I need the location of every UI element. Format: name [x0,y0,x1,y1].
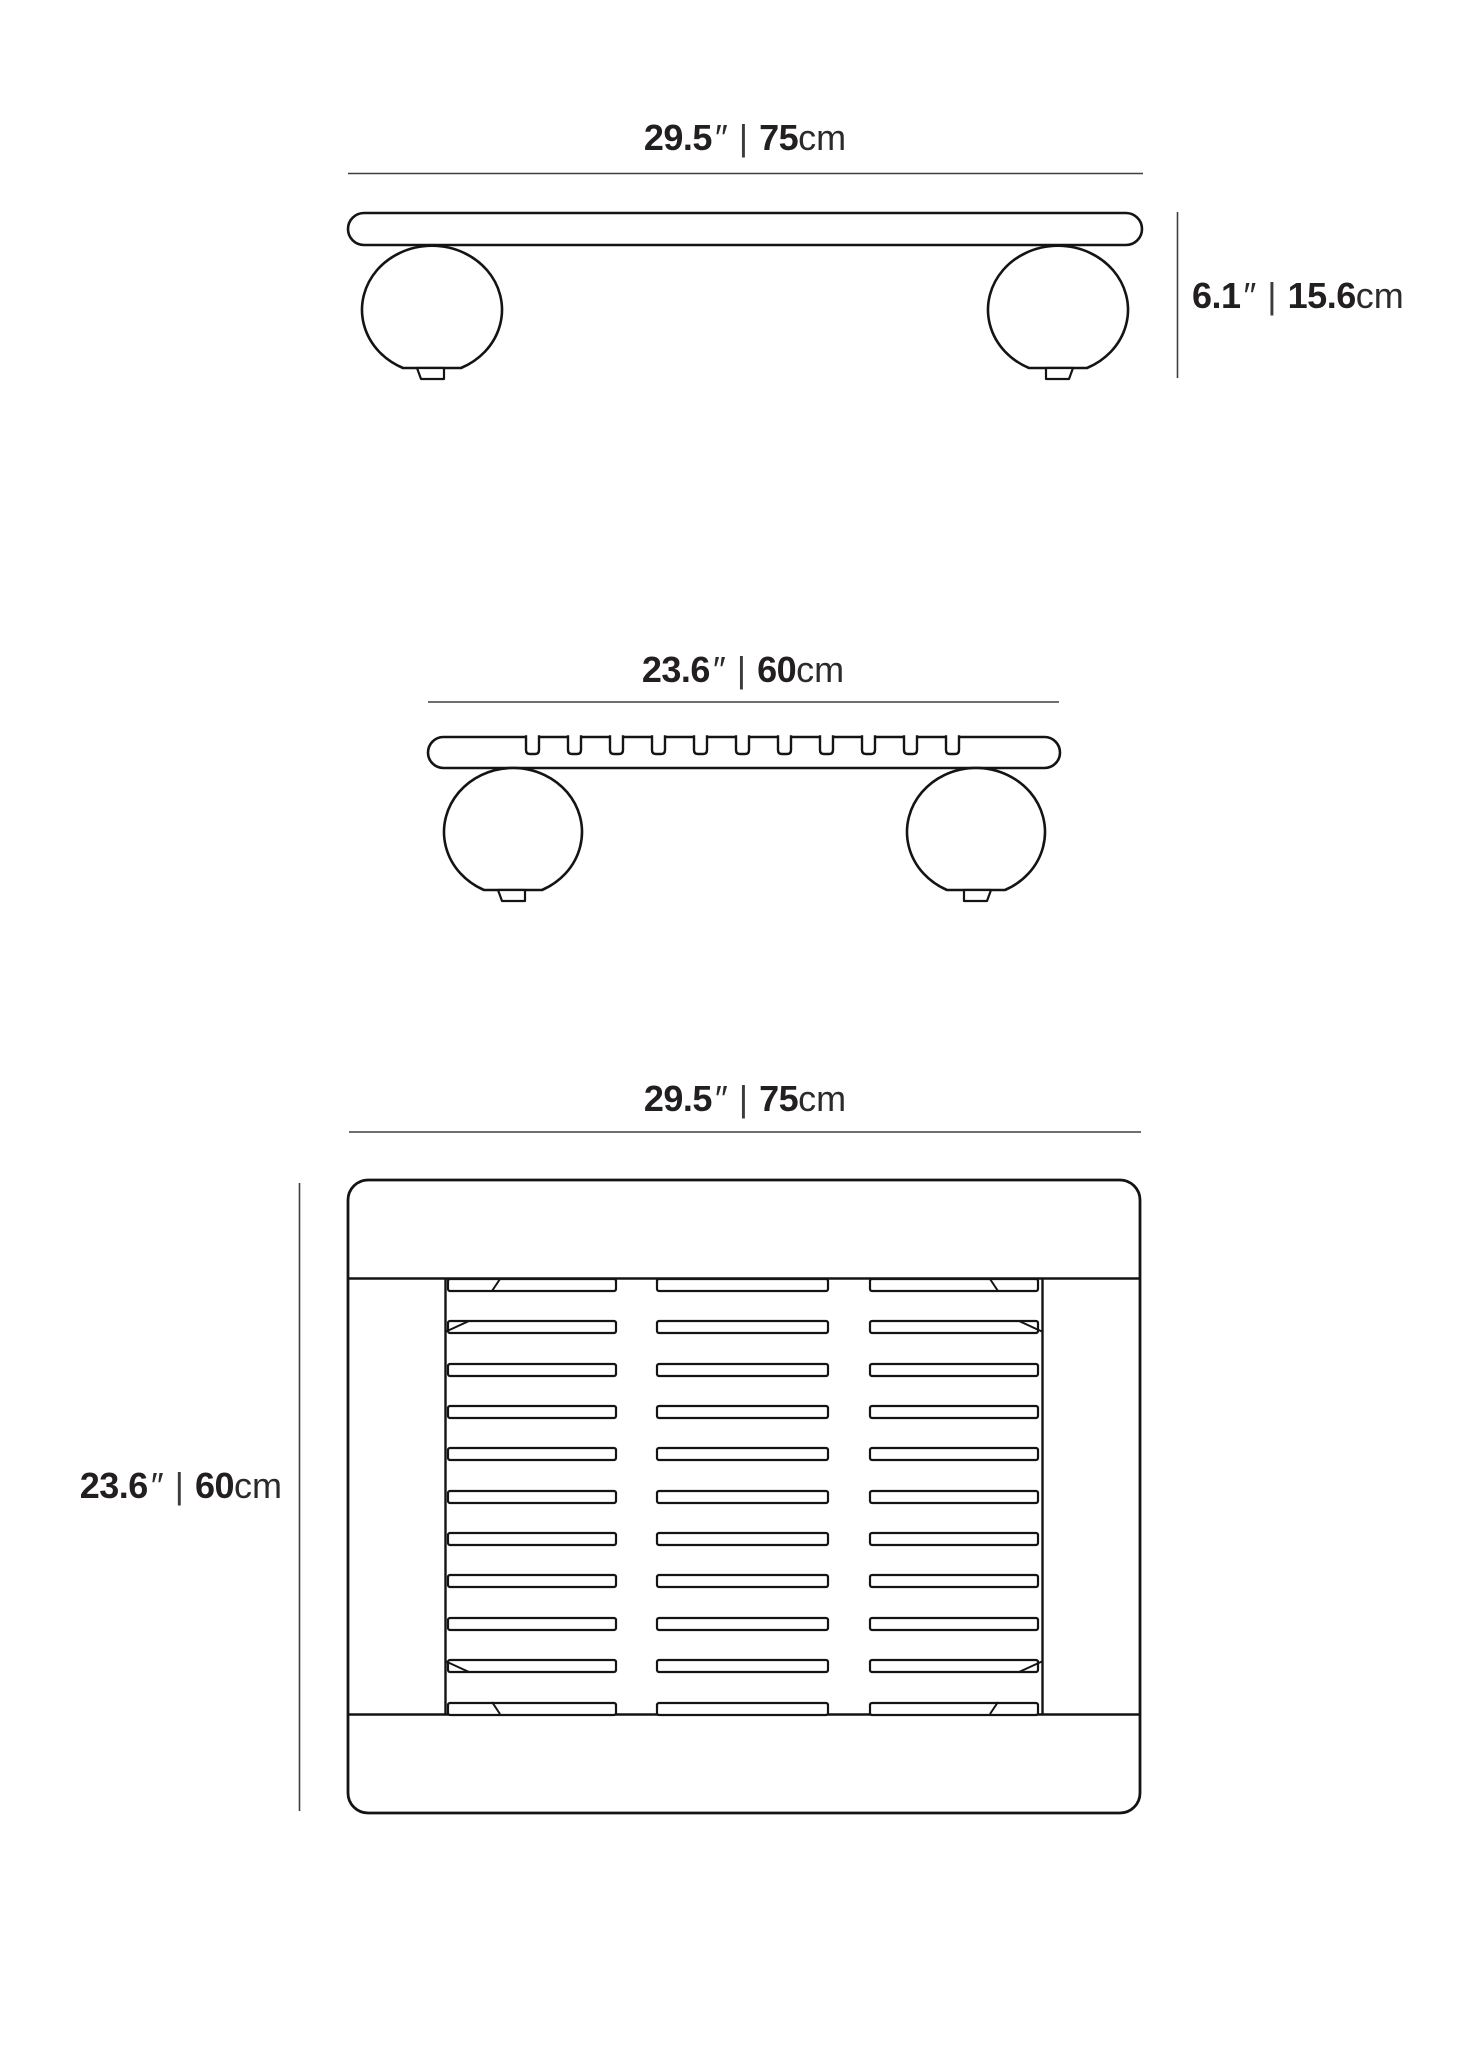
slat [448,1575,616,1587]
slat-notch [736,735,749,754]
slat [657,1703,828,1715]
slat [448,1448,616,1460]
label-separator: | [175,1468,184,1504]
front-height-inches: 6.1 [1192,278,1241,314]
slat [657,1448,828,1460]
metric-unit: cm [798,1081,846,1117]
slat [448,1703,616,1715]
inch-mark: ″ [715,1081,728,1117]
front-tabletop-slab [348,213,1142,245]
slat [657,1406,828,1418]
side-depth-metric: 60 [757,652,796,688]
label-separator: | [739,120,748,156]
slat [657,1321,828,1333]
slat [448,1279,616,1291]
front-width-metric: 75 [759,120,798,156]
slat-notch [946,735,959,754]
side-view [428,702,1060,901]
top-width-metric: 75 [759,1081,798,1117]
side-depth-label: 23.6″|60cm [243,652,1243,688]
slat [448,1491,616,1503]
metric-unit: cm [798,120,846,156]
metric-unit: cm [234,1468,282,1504]
slat [448,1321,616,1333]
front-height-label: 6.1″|15.6cm [1192,278,1472,314]
slat [870,1364,1038,1376]
metric-unit: cm [796,652,844,688]
top-depth-label: 23.6″|60cm [0,1468,282,1504]
label-separator: | [739,1081,748,1117]
slat [870,1533,1038,1545]
slat-notch [778,735,791,754]
top-view [300,1132,1142,1813]
top-depth-inches: 23.6 [80,1468,148,1504]
slat [870,1660,1038,1672]
slat [870,1279,1038,1291]
slat [448,1618,616,1630]
label-separator: | [737,652,746,688]
front-leg-foot-right [1046,368,1073,379]
slat [870,1618,1038,1630]
label-separator: | [1267,278,1276,314]
slat [448,1406,616,1418]
front-sphere-leg-right [988,246,1128,368]
slat [657,1618,828,1630]
slat-notch [652,735,665,754]
slat [657,1575,828,1587]
top-width-inches: 29.5 [644,1081,712,1117]
slat [448,1660,616,1672]
top-depth-metric: 60 [195,1468,234,1504]
front-view [348,174,1178,380]
slat-notch [904,735,917,754]
side-sphere-leg-right [907,768,1045,890]
side-depth-inches: 23.6 [642,652,710,688]
inch-mark: ″ [151,1468,164,1504]
slat [448,1533,616,1545]
inch-mark: ″ [713,652,726,688]
slat [657,1660,828,1672]
slat [657,1491,828,1503]
inch-mark: ″ [715,120,728,156]
side-leg-foot-left [498,890,525,901]
slat [870,1491,1038,1503]
slat [870,1703,1038,1715]
front-width-inches: 29.5 [644,120,712,156]
slat [870,1575,1038,1587]
top-width-label: 29.5″|75cm [245,1081,1245,1117]
side-sphere-leg-left [444,768,582,890]
slat [870,1448,1038,1460]
front-height-metric: 15.6 [1288,278,1356,314]
slat-notch [694,735,707,754]
front-leg-foot-left [417,368,444,379]
side-leg-foot-right [964,890,991,901]
slat-notch [526,735,539,754]
slat-notch [568,735,581,754]
slat [870,1321,1038,1333]
slat [870,1406,1038,1418]
slat-notch [820,735,833,754]
slat-notch [610,735,623,754]
slat [657,1364,828,1376]
slat [448,1364,616,1376]
front-sphere-leg-left [362,246,502,368]
slat [657,1533,828,1545]
front-width-label: 29.5″|75cm [245,120,1245,156]
slat [657,1279,828,1291]
metric-unit: cm [1356,278,1404,314]
inch-mark: ″ [1244,278,1257,314]
dimension-diagram: 29.5″|75cm 6.1″|15.6cm 23.6″|60cm 29.5″|… [0,0,1482,2048]
slat-notch [862,735,875,754]
